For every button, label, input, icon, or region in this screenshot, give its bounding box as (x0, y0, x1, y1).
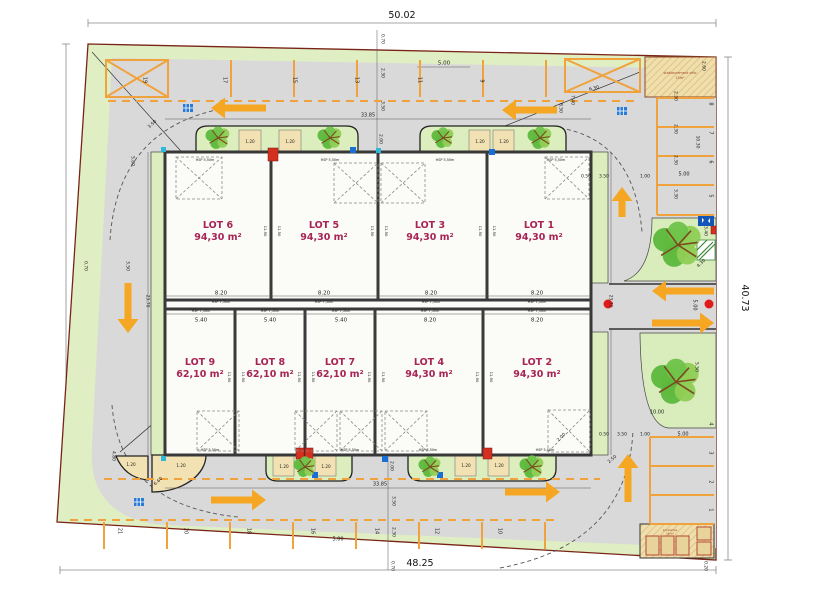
dim-label: 0.70 (380, 34, 386, 44)
dim-label: 2.30 (673, 91, 679, 101)
lot-area: 94,30 m² (300, 232, 347, 243)
stall-number: 5 (708, 194, 714, 197)
dim-label: 1.20 (279, 464, 289, 469)
stall-number: 1 (708, 508, 714, 511)
stall-number: 11 (417, 77, 423, 83)
stall-number: 10 (497, 528, 503, 534)
bike-shelter-area: 15m² (676, 76, 686, 80)
dim-label: 11.50 (277, 226, 282, 237)
dim-label: 33.85 (361, 113, 375, 119)
dim-label: 11.50 (297, 372, 302, 383)
lot-name: LOT 9 (185, 357, 215, 368)
dim-label: 5.40 (195, 318, 208, 324)
dim-label: 8.50 (558, 103, 564, 113)
stall-number: 16 (310, 528, 316, 534)
dim-label: 8.20 (424, 318, 437, 324)
dim-label: 0.70 (83, 261, 89, 271)
waste-area: poubelles 16m² (640, 524, 714, 558)
dim-label: 4.80 (111, 451, 117, 461)
stall-number: 8 (708, 102, 714, 105)
stall-number: 21 (117, 528, 123, 534)
dim-label: 11.50 (489, 372, 494, 383)
dim-label: HSP 7,50m (212, 300, 231, 304)
dim-label: HSP 7,50m (192, 309, 211, 313)
stall-number: 15 (292, 77, 298, 83)
dim-label: 5.00 (692, 299, 698, 310)
dim-label: HSP 7,50m (528, 300, 547, 304)
stall-number: 17 (222, 77, 228, 83)
dim-label: 1.20 (499, 139, 509, 144)
dim-label: HSP 5,50m (419, 448, 438, 452)
dim-label: 8.20 (318, 291, 331, 297)
dim-label: 3.30 (673, 189, 679, 199)
dim-label: 3.50 (391, 496, 397, 506)
dim-label: 2.30 (673, 155, 679, 165)
stall-number: 12 (434, 528, 440, 534)
stall-number: 4 (708, 422, 714, 425)
dim-label: 5.80 (130, 156, 136, 166)
stall-number: 6 (708, 160, 714, 163)
dim-label: HSP 7,50m (421, 309, 440, 313)
dim-label: 11.50 (370, 226, 375, 237)
dim-label: 2.30 (391, 527, 397, 537)
bike-shelter-label: stationnement vélo (664, 71, 697, 75)
stall-number: 20 (183, 528, 189, 534)
dim-label: 33.85 (373, 482, 387, 488)
dim-label: HSP 5,50m (321, 158, 340, 162)
dim-label: 1.20 (461, 463, 471, 468)
lot-area: 94,30 m² (513, 369, 560, 380)
dim-label: HSP 5,50m (436, 158, 455, 162)
dim-label: 3.40 (703, 226, 709, 236)
lot-area: 62,10 m² (316, 369, 363, 380)
dim-label: 11.50 (384, 226, 389, 237)
dim-label: 5.00 (677, 432, 688, 438)
dim-label: HSP 7,50m (422, 300, 441, 304)
dim-label: 8.20 (531, 291, 544, 297)
dim-label: 1.20 (494, 463, 504, 468)
stall-number: 2 (708, 480, 714, 483)
dim-label: 11.50 (227, 372, 232, 383)
dim-label: 1.20 (245, 139, 255, 144)
dim-label: HSP 5,50m (196, 158, 215, 162)
dim-label: 23.70 (145, 295, 151, 308)
dim-label: 8.20 (531, 318, 544, 324)
dim-label: 2.30 (673, 124, 679, 134)
dim-label: 11.50 (475, 372, 480, 383)
dim-top: 50.02 (388, 10, 415, 21)
lot-area: 62,10 m² (246, 369, 293, 380)
dim-bottom: 48.25 (406, 558, 433, 569)
stall-number: 19 (142, 77, 148, 83)
dim-label: 8.20 (425, 291, 438, 297)
lot-area: 62,10 m² (176, 369, 223, 380)
dim-label: 2.00 (378, 134, 384, 144)
dim-label: 0.50 (581, 174, 591, 180)
stall-number: 13 (354, 77, 360, 83)
site-plan-drawing: 50.02 48.25 40.77 40.73 stationnement vé… (0, 0, 814, 600)
dim-label: 11.50 (263, 226, 268, 237)
dim-label: 5.00 (438, 61, 451, 67)
dim-label: 1.00 (640, 432, 650, 438)
lot-name: LOT 1 (524, 220, 554, 231)
dim-label: 1.20 (176, 463, 186, 468)
dim-label: HSP 7,50m (528, 309, 547, 313)
dim-label: 10.00 (650, 410, 664, 416)
lot-area: 94,30 m² (406, 232, 453, 243)
dim-label: 1.20 (321, 464, 331, 469)
dim-label: 2.60 (701, 61, 707, 71)
dim-label: 5.50 (694, 362, 700, 372)
dim-label: 0.50 (599, 432, 609, 438)
dim-label: HSP 7,50m (332, 309, 351, 313)
lot-name: LOT 4 (414, 357, 445, 368)
dim-label: 2.00 (389, 461, 395, 471)
lot-name: LOT 7 (325, 357, 355, 368)
dim-label: 3.50 (125, 261, 131, 271)
dim-label: 1.20 (475, 139, 485, 144)
lot-area: 94,30 m² (194, 232, 241, 243)
dim-label: HSP 5,50m (201, 448, 220, 452)
dim-label: HSP 5,50m (536, 448, 555, 452)
stall-number: 9 (479, 79, 485, 82)
dim-label: 10.30 (695, 136, 701, 149)
stall-number: 7 (708, 131, 714, 134)
dim-label: HSP 7,50m (315, 300, 334, 304)
dim-label: 2.30 (380, 68, 386, 78)
stall-number: 18 (246, 528, 252, 534)
lot-name: LOT 8 (255, 357, 286, 368)
site-plan: 50.02 48.25 40.77 40.73 stationnement vé… (0, 0, 814, 600)
stall-number: 3 (708, 451, 714, 454)
dim-label: 5.00 (332, 537, 343, 543)
dim-label: 11.50 (478, 226, 483, 237)
lot-area: 94,30 m² (405, 369, 452, 380)
dim-label: 5.40 (264, 318, 277, 324)
lot-area: 94,30 m² (515, 232, 562, 243)
dim-label: 1.20 (285, 139, 295, 144)
dim-label: 3.50 (617, 432, 627, 438)
lot-name: LOT 3 (415, 220, 445, 231)
dim-label: 23.70 (608, 295, 614, 308)
dim-right: 40.73 (739, 284, 750, 311)
dim-label: 8.20 (215, 291, 228, 297)
lot-name: LOT 6 (203, 220, 234, 231)
dim-label: 0.70 (390, 561, 396, 571)
waste-area-area: 16m² (666, 532, 675, 536)
dim-label: HSP 7,50m (261, 309, 280, 313)
dim-label: 5.40 (335, 318, 348, 324)
dim-label: 0.20 (703, 561, 709, 571)
lot-name: LOT 5 (309, 220, 339, 231)
dim-label: 1.00 (640, 174, 650, 180)
dim-label: 11.50 (492, 226, 497, 237)
dim-label: HSP 5,50m (341, 448, 360, 452)
dim-label: 3.50 (599, 174, 609, 180)
dim-label: 1.20 (126, 462, 136, 467)
dim-label: 5.00 (678, 172, 689, 178)
dim-label: 11.50 (367, 372, 372, 383)
dim-label: HSP 5,50m (547, 158, 566, 162)
dim-label: 3.50 (380, 101, 386, 111)
dim-label: 7.40 (570, 95, 576, 105)
dim-label: 11.50 (381, 372, 386, 383)
dim-label: 11.50 (241, 372, 246, 383)
dim-label: 11.50 (311, 372, 316, 383)
stall-number: 14 (374, 528, 380, 534)
lot-name: LOT 2 (522, 357, 552, 368)
